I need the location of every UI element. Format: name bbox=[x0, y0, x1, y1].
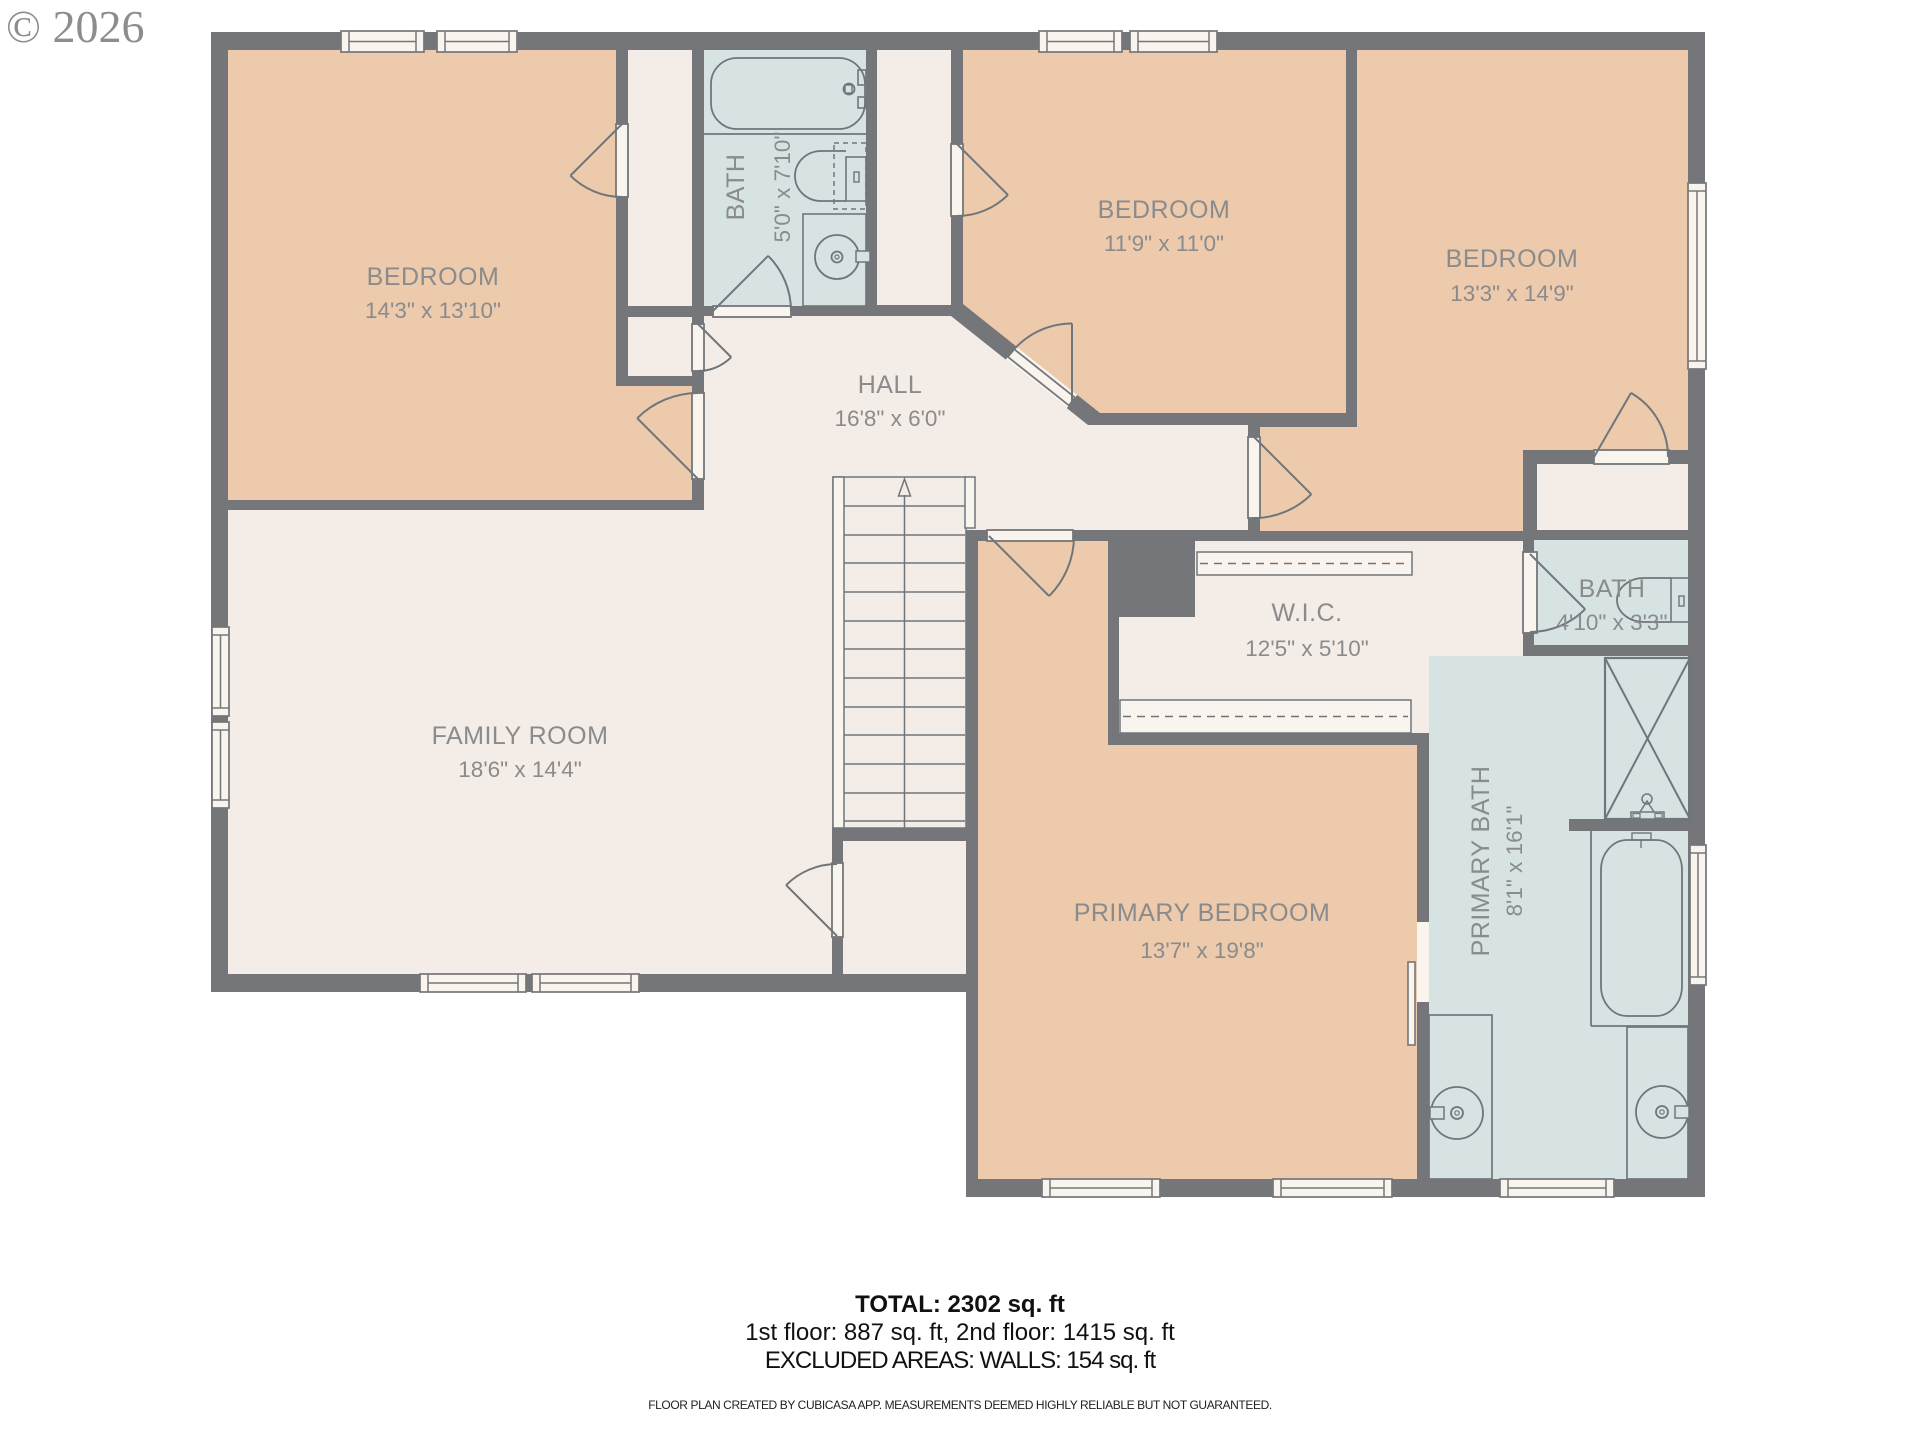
svg-text:5'0" x 7'10": 5'0" x 7'10" bbox=[770, 132, 795, 243]
svg-text:HALL: HALL bbox=[858, 371, 923, 399]
svg-text:12'5" x 5'10": 12'5" x 5'10" bbox=[1245, 636, 1368, 661]
svg-text:PRIMARY BEDROOM: PRIMARY BEDROOM bbox=[1074, 899, 1331, 927]
svg-text:13'3" x 14'9": 13'3" x 14'9" bbox=[1450, 281, 1573, 306]
svg-text:BATH: BATH bbox=[1579, 575, 1646, 603]
svg-text:4'10" x 3'3": 4'10" x 3'3" bbox=[1557, 610, 1668, 635]
svg-text:18'6" x 14'4": 18'6" x 14'4" bbox=[458, 757, 581, 782]
svg-text:BEDROOM: BEDROOM bbox=[1446, 245, 1579, 273]
svg-text:1st floor: 887 sq. ft, 2nd flo: 1st floor: 887 sq. ft, 2nd floor: 1415 s… bbox=[745, 1319, 1175, 1346]
svg-text:8'1" x 16'1": 8'1" x 16'1" bbox=[1502, 806, 1527, 917]
svg-text:W.I.C.: W.I.C. bbox=[1271, 599, 1342, 627]
svg-text:FAMILY ROOM: FAMILY ROOM bbox=[432, 722, 609, 750]
svg-text:13'7" x 19'8": 13'7" x 19'8" bbox=[1140, 938, 1263, 963]
svg-text:FLOOR PLAN CREATED BY CUBICASA: FLOOR PLAN CREATED BY CUBICASA APP. MEAS… bbox=[648, 1398, 1272, 1412]
svg-text:BEDROOM: BEDROOM bbox=[1098, 196, 1231, 224]
svg-text:EXCLUDED AREAS: WALLS: 154 sq.: EXCLUDED AREAS: WALLS: 154 sq. ft bbox=[765, 1347, 1157, 1374]
svg-text:BEDROOM: BEDROOM bbox=[367, 263, 500, 291]
svg-text:PRIMARY BATH: PRIMARY BATH bbox=[1467, 766, 1495, 957]
svg-text:BATH: BATH bbox=[722, 154, 750, 221]
svg-text:TOTAL: 2302 sq. ft: TOTAL: 2302 sq. ft bbox=[855, 1291, 1065, 1318]
svg-text:11'9" x 11'0": 11'9" x 11'0" bbox=[1104, 231, 1224, 256]
svg-text:16'8" x 6'0": 16'8" x 6'0" bbox=[835, 406, 946, 431]
svg-text:© 2026: © 2026 bbox=[6, 1, 144, 52]
svg-text:14'3" x 13'10": 14'3" x 13'10" bbox=[365, 298, 501, 323]
